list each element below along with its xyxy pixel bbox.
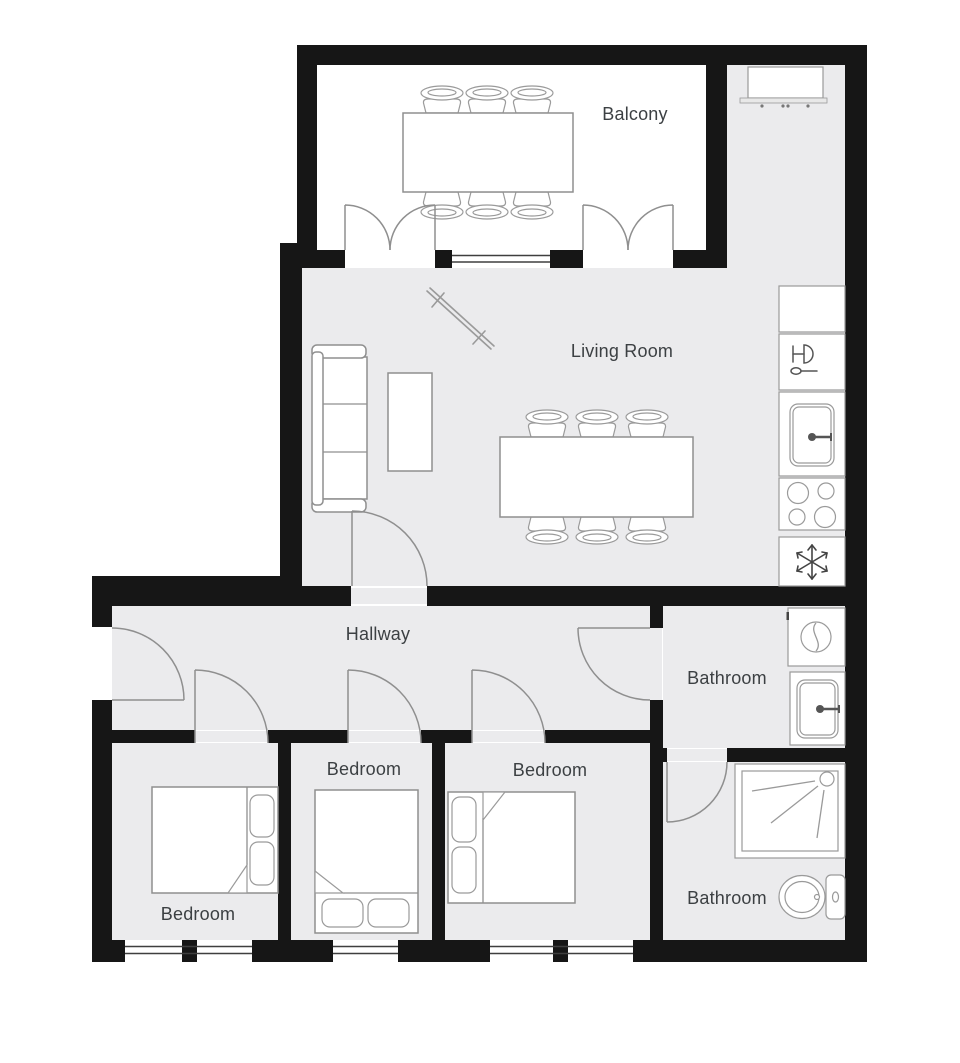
bed-bedroom-1 (152, 787, 278, 893)
coffee-table (388, 373, 432, 471)
pillow (250, 795, 274, 837)
pillow (250, 842, 274, 885)
kitchen-counter (779, 286, 845, 332)
window-bedroom-2 (333, 947, 398, 954)
sofa (312, 345, 367, 512)
dining-chair-icon (511, 192, 553, 219)
room-label-balcony: Balcony (602, 104, 667, 124)
living-dining-table (500, 437, 693, 517)
balcony-dining-table (403, 113, 573, 192)
dining-chair-icon (466, 192, 508, 219)
floor-plan: Balcony Living Room Hallway Bathroom Bed… (0, 0, 960, 1063)
bathroom-1-fixtures (787, 608, 846, 745)
balcony-dining-set (403, 86, 573, 219)
floor-plan-canvas: Balcony Living Room Hallway Bathroom Bed… (0, 0, 960, 1063)
room-living-room (302, 268, 845, 586)
pillow (322, 899, 363, 927)
toilet-icon (779, 875, 845, 919)
bed-bedroom-3 (448, 792, 575, 903)
dining-chair-icon (526, 410, 568, 437)
dining-chair-icon (626, 410, 668, 437)
bathroom-sink-icon (790, 672, 845, 745)
room-label-living-room: Living Room (571, 341, 673, 361)
bed-bedroom-2 (315, 790, 418, 933)
room-label-bathroom-2: Bathroom (687, 888, 767, 908)
kitchen-cabinet (740, 67, 827, 108)
dishwasher-icon (779, 334, 845, 390)
room-label-bedroom-1: Bedroom (161, 904, 235, 924)
washing-machine-icon (787, 608, 846, 666)
dining-chair-icon (421, 86, 463, 113)
room-label-hallway: Hallway (346, 624, 410, 644)
dining-chair-icon (626, 517, 668, 544)
window-balcony (452, 250, 550, 268)
dining-chair-icon (576, 410, 618, 437)
shower-icon (735, 764, 845, 858)
dining-chair-icon (576, 517, 618, 544)
pillow (452, 797, 476, 842)
room-label-bathroom-1: Bathroom (687, 668, 767, 688)
dining-chair-icon (511, 86, 553, 113)
pillow (452, 847, 476, 893)
kitchen-sink-icon (779, 392, 845, 476)
freezer-icon (779, 537, 845, 586)
room-label-bedroom-2: Bedroom (327, 759, 401, 779)
living-dining-set (500, 410, 693, 544)
stove-icon (779, 478, 845, 530)
dining-chair-icon (526, 517, 568, 544)
dining-chair-icon (466, 86, 508, 113)
room-label-bedroom-3: Bedroom (513, 760, 587, 780)
kitchen-column (779, 286, 845, 586)
pillow (368, 899, 409, 927)
